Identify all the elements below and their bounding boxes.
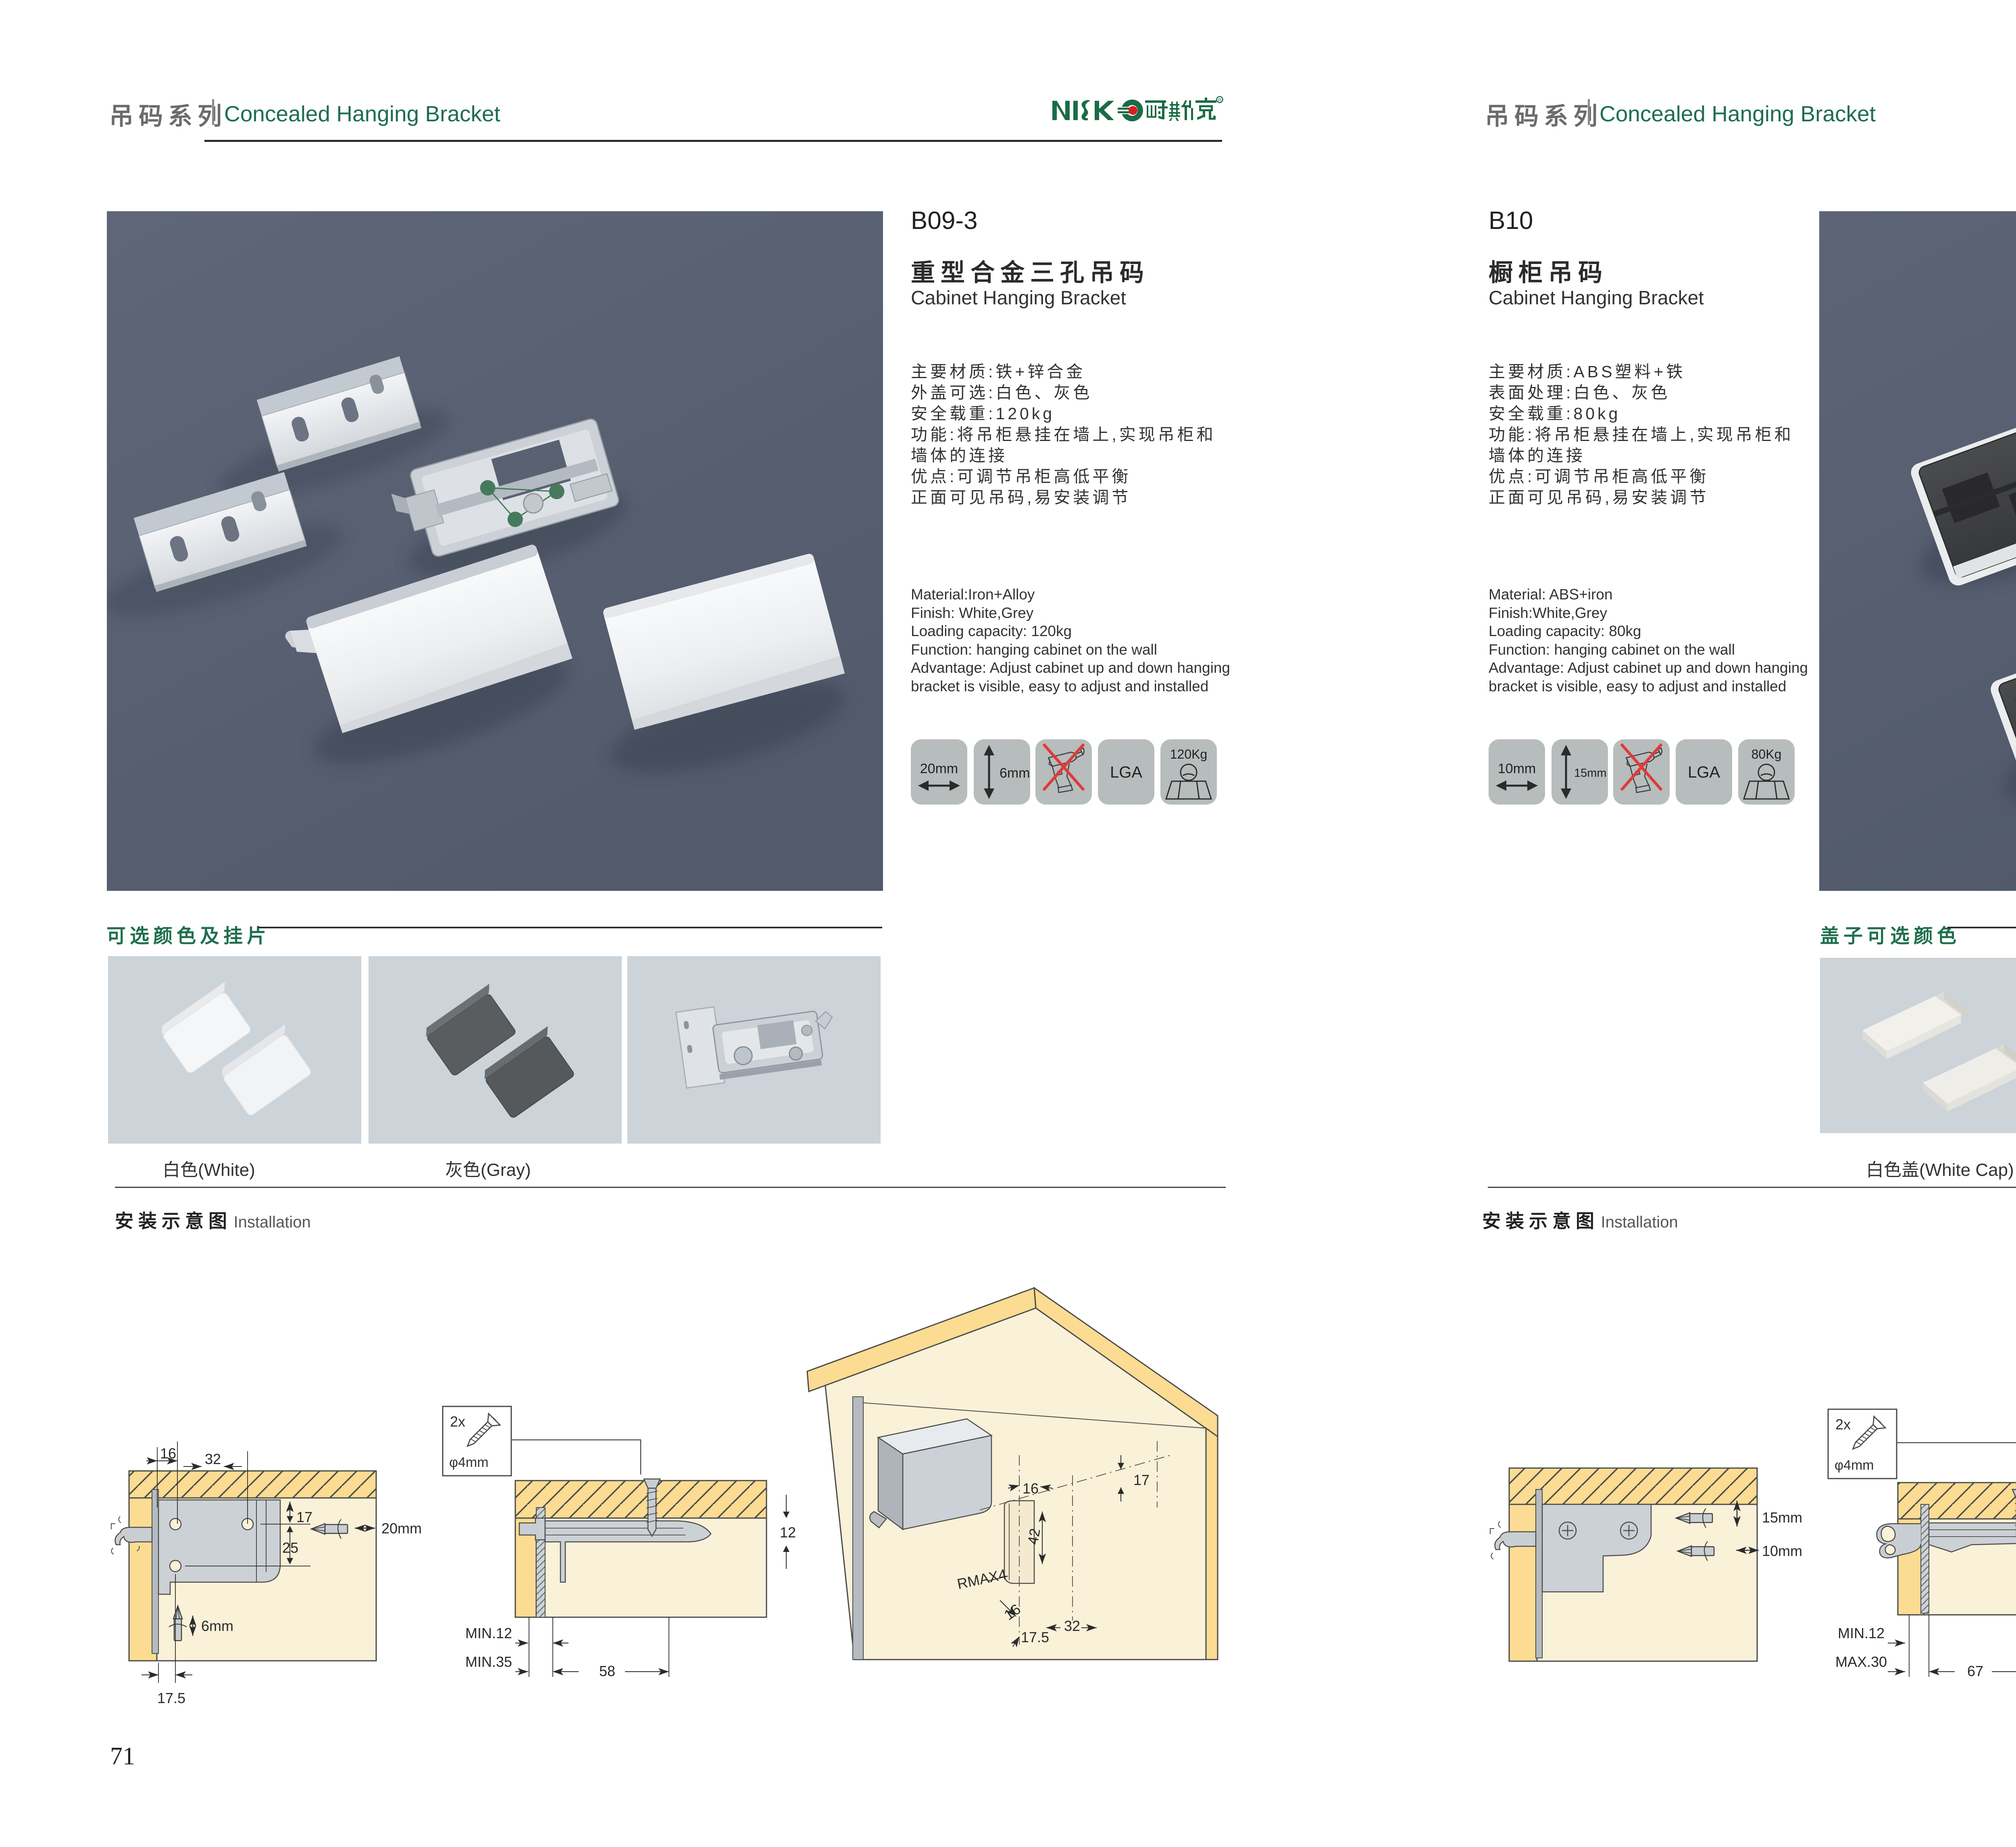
svg-text:17.5: 17.5 <box>1021 1629 1049 1645</box>
svg-text:58: 58 <box>599 1663 615 1679</box>
svg-text:32: 32 <box>1064 1618 1080 1634</box>
svg-text:10mm: 10mm <box>1762 1543 1802 1559</box>
svg-text:MIN.12: MIN.12 <box>1838 1625 1885 1641</box>
svg-text:67: 67 <box>1967 1663 1983 1679</box>
svg-text:12: 12 <box>780 1524 796 1541</box>
svg-text:MIN.35: MIN.35 <box>465 1654 512 1670</box>
svg-text:6mm: 6mm <box>1000 765 1030 781</box>
svg-text:15mm: 15mm <box>1762 1509 1802 1526</box>
svg-text:LGA: LGA <box>1688 763 1720 781</box>
svg-text:25: 25 <box>282 1539 298 1556</box>
svg-text:LGA: LGA <box>1110 763 1142 781</box>
svg-text:17: 17 <box>296 1509 312 1525</box>
svg-text:42: 42 <box>1024 1527 1043 1546</box>
svg-text:MAX.30: MAX.30 <box>1835 1654 1887 1670</box>
svg-text:15mm: 15mm <box>1574 767 1607 780</box>
svg-text:16: 16 <box>160 1445 176 1462</box>
svg-text:20mm: 20mm <box>381 1520 422 1537</box>
svg-text:20mm: 20mm <box>920 761 958 776</box>
svg-text:32: 32 <box>205 1451 221 1467</box>
svg-text:17: 17 <box>1133 1472 1150 1488</box>
svg-text:80Kg: 80Kg <box>1752 747 1782 761</box>
svg-text:MIN.12: MIN.12 <box>465 1625 512 1641</box>
svg-text:6mm: 6mm <box>201 1618 233 1634</box>
svg-text:16: 16 <box>1023 1480 1039 1497</box>
svg-text:17.5: 17.5 <box>157 1690 185 1706</box>
svg-text:10mm: 10mm <box>1498 761 1536 776</box>
svg-text:120Kg: 120Kg <box>1170 747 1208 761</box>
